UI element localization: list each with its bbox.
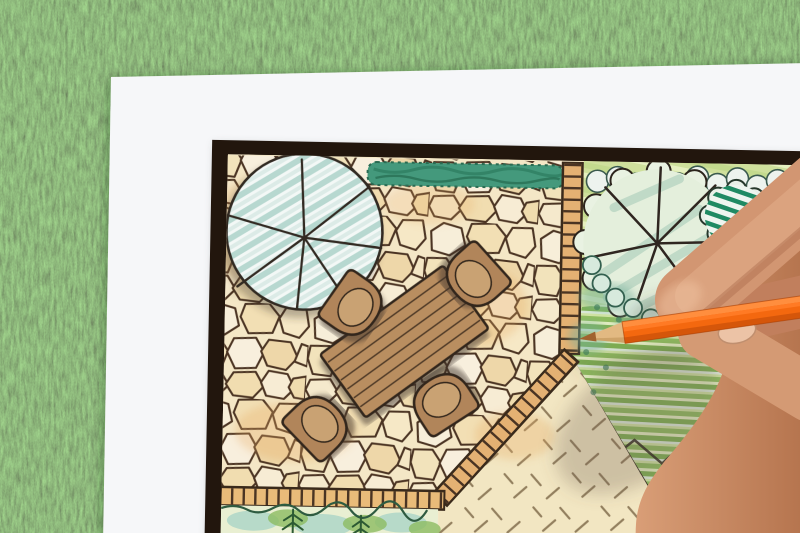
- hedge-strip: [367, 162, 563, 189]
- edging-vertical-ladder: [569, 162, 573, 355]
- photo-scene: [0, 0, 800, 533]
- edging-horizontal: [217, 496, 445, 500]
- garden-plan-photo: [0, 0, 800, 533]
